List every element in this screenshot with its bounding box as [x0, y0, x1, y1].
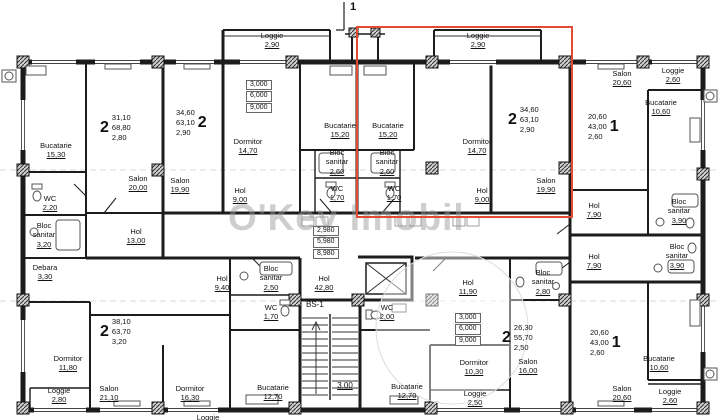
- level-value: 5,980: [313, 237, 339, 247]
- level-value: 6,000: [246, 91, 272, 101]
- room-label: WC2,20: [43, 194, 58, 213]
- level-value: 2,980: [313, 226, 339, 236]
- unit-rooms: 2: [198, 114, 207, 132]
- room-label: Loggie: [197, 413, 220, 420]
- unit-rooms: 2: [502, 329, 511, 347]
- room-label: Bucatarie10,60: [645, 98, 677, 117]
- level-value: 9,000: [455, 336, 481, 346]
- room-label: Hol9,00: [233, 186, 248, 205]
- room-label: Salon21,10: [99, 384, 118, 403]
- room-label: WC1,70: [264, 303, 279, 322]
- room-label: Bucatarie10,60: [643, 354, 675, 373]
- room-label: Hol9,40: [215, 274, 230, 293]
- room-label: Dormitor16,30: [176, 384, 205, 403]
- unit-rooms: 1: [612, 334, 621, 352]
- room-label: WC2,00: [380, 303, 395, 322]
- room-label: Hol7,90: [587, 252, 602, 271]
- highlighted-unit-outline[interactable]: [356, 26, 573, 218]
- room-label: Salon20,60: [612, 384, 631, 403]
- room-label: Loggie2,50: [464, 389, 487, 408]
- room-label: Bloc sanitar3,90: [661, 197, 697, 225]
- room-label: Salon20,00: [128, 174, 147, 193]
- room-label: Loggie2,60: [659, 387, 682, 406]
- level-value: 3,000: [246, 80, 272, 90]
- room-label: Hol13,00: [127, 227, 146, 246]
- unit-stamp: 20,6043,002,60 1: [590, 328, 621, 357]
- room-label: Debara3,30: [33, 263, 58, 282]
- staircase-label: BS-1: [306, 300, 324, 309]
- room-label: Salon19,90: [170, 176, 189, 195]
- unit-stamp: 2 26,3055,702,50: [502, 323, 533, 352]
- room-label: Salon20,60: [612, 69, 631, 88]
- room-label: Loggie2,60: [662, 66, 685, 85]
- room-label: Hol42,80: [315, 274, 334, 293]
- section-mark-line: [336, 2, 344, 30]
- unit-rooms: 1: [610, 118, 619, 136]
- room-label: Bucatarie12,70: [257, 383, 289, 402]
- room-label: WC1,70: [330, 184, 345, 203]
- unit-stamp: 2 38,1063,703,20: [100, 317, 131, 346]
- room-label: Hol7,90: [587, 201, 602, 220]
- room-label: Bloc sanitar2,80: [525, 268, 561, 296]
- unit-stamp: 20,6043,002,60 1: [588, 112, 619, 141]
- room-label: Bucatarie15,30: [40, 141, 72, 160]
- elevation-levels-right: 3,000 6,000 9,000: [455, 313, 481, 346]
- room-label: Bucatarie12,70: [391, 382, 423, 401]
- room-label: Bloc sanitar3,90: [659, 242, 695, 270]
- room-label: Loggie2,80: [48, 386, 71, 405]
- unit-rooms: 2: [100, 323, 109, 341]
- level-value: 8,980: [313, 249, 339, 259]
- level-value: 6,000: [455, 324, 481, 334]
- room-label: Bloc sanitar2,50: [253, 264, 289, 292]
- elevation-levels-left: 3,000 6,000 9,000: [246, 80, 272, 113]
- room-label: Loggie2,90: [261, 31, 284, 50]
- level-value: 9,000: [246, 103, 272, 113]
- room-label: Dormitor11,80: [54, 354, 83, 373]
- room-label: Dormitor10,30: [460, 358, 489, 377]
- room-label: Salon16,00: [518, 357, 537, 376]
- elevation-levels-center: 2,980 5,980 8,980: [313, 226, 339, 259]
- room-label: Bucatarie15,20: [324, 121, 356, 140]
- room-label: Hol11,90: [459, 278, 477, 297]
- unit-stamp: 34,6063,102,90 2: [176, 108, 207, 137]
- stair-width-label: 3.00: [337, 381, 353, 390]
- section-mark-label: 1: [350, 1, 356, 13]
- level-value: 3,000: [455, 313, 481, 323]
- room-label: Bloc sanitar3,20: [26, 221, 62, 249]
- room-label: Bloc sanitar2,60: [319, 148, 355, 176]
- room-label: Dormitor14,70: [234, 137, 263, 156]
- unit-stamp: 2 31,1068,802,80: [100, 113, 131, 142]
- unit-rooms: 2: [100, 119, 109, 137]
- floor-plan: O'Key Imobil 1 BS-1 3.00 3,000 6,000 9,0…: [0, 0, 720, 420]
